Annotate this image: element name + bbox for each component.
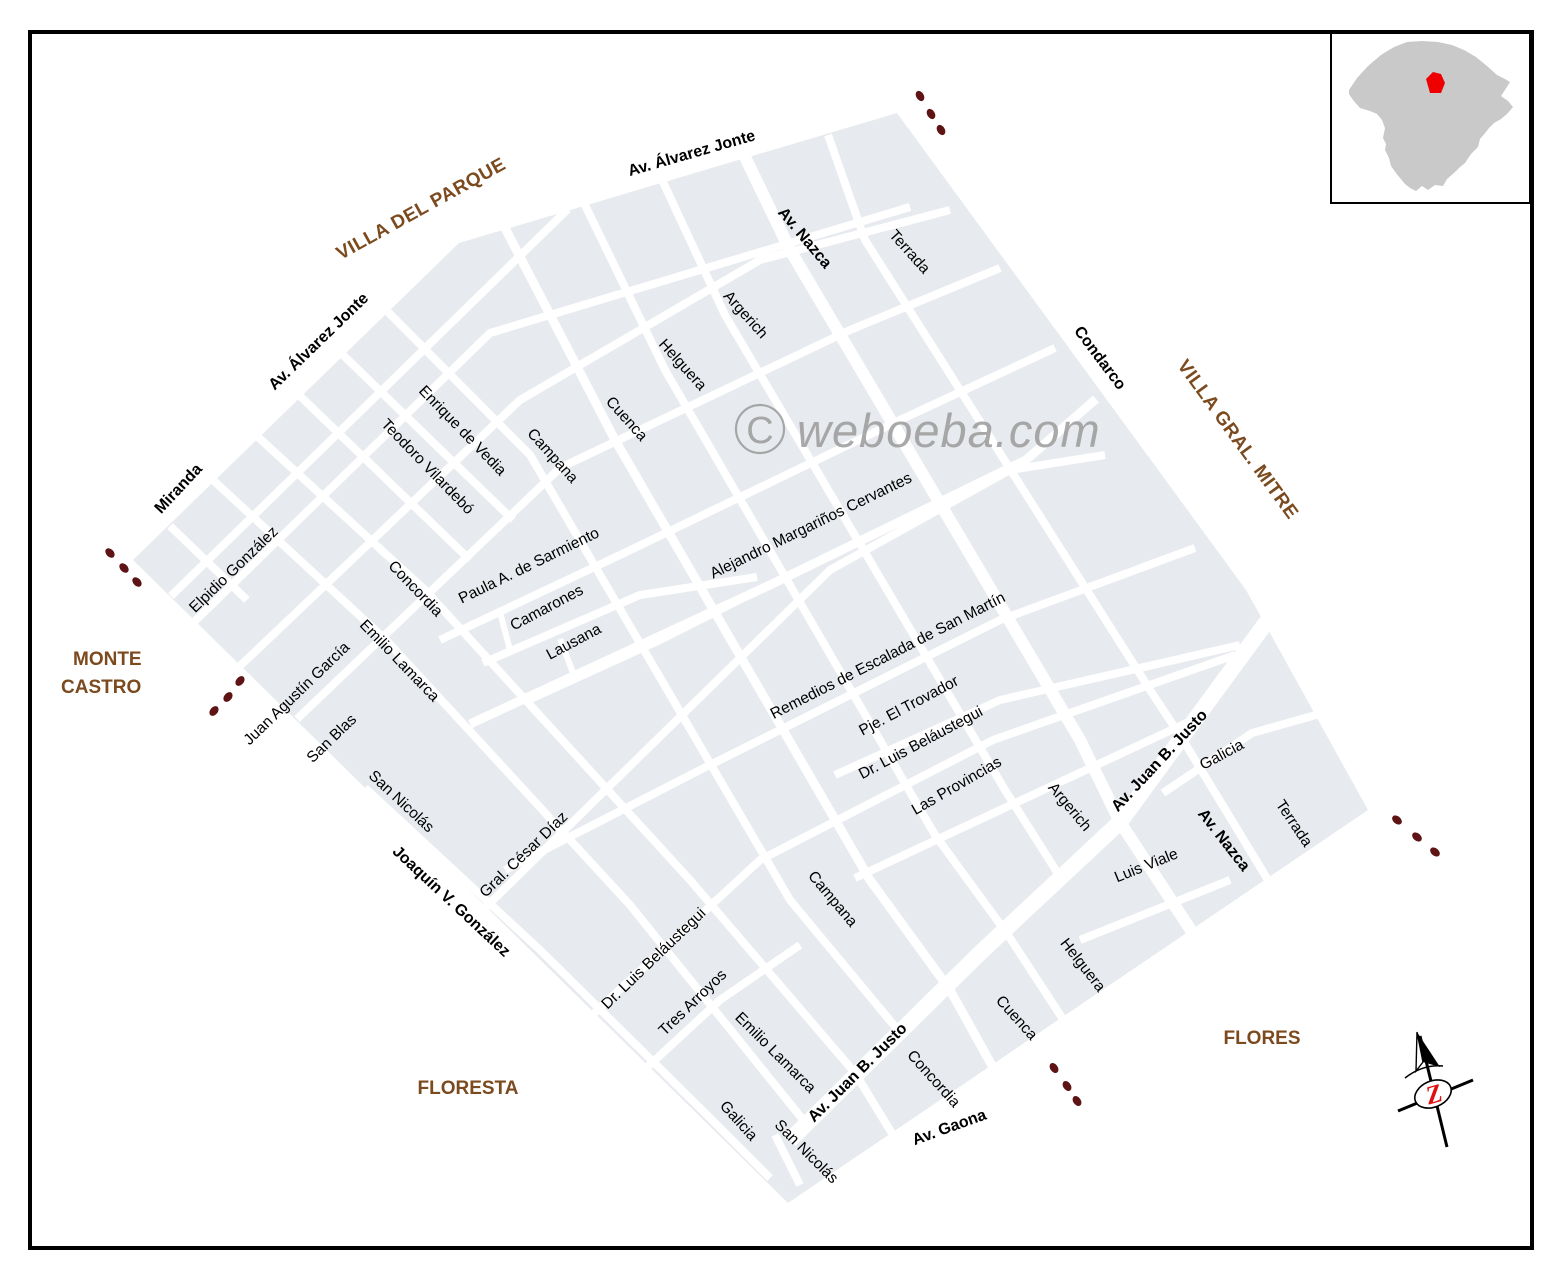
svg-text:MONTE: MONTE <box>73 649 142 670</box>
svg-text:C: C <box>746 410 773 452</box>
svg-text:weboeba.com: weboeba.com <box>797 404 1101 457</box>
svg-text:CASTRO: CASTRO <box>61 677 141 698</box>
svg-text:FLORES: FLORES <box>1223 1028 1300 1049</box>
svg-text:FLORESTA: FLORESTA <box>418 1078 519 1099</box>
